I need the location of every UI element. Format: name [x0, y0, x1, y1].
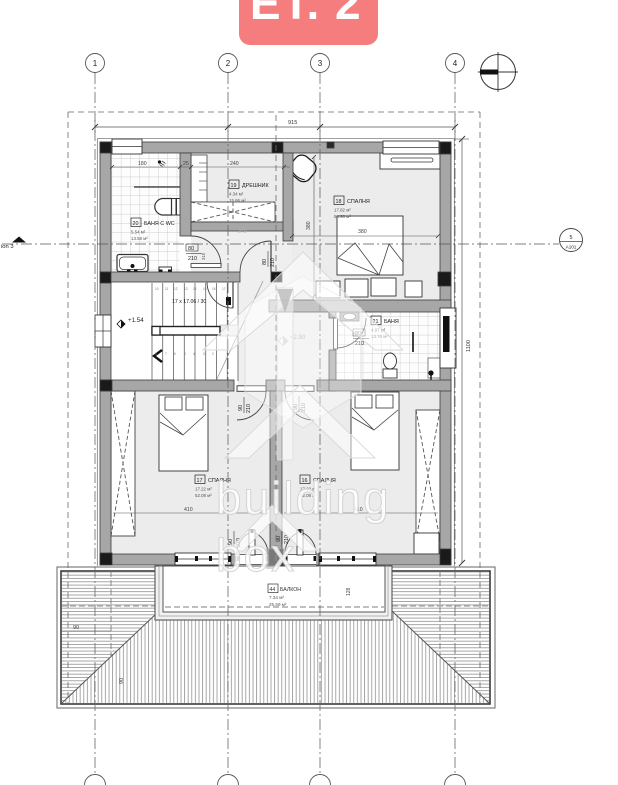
- svg-text:380: 380: [358, 229, 367, 235]
- svg-text:ЕТ. 2: ЕТ. 2: [250, 0, 362, 29]
- svg-text:380: 380: [306, 221, 312, 230]
- svg-text:128: 128: [346, 587, 352, 596]
- svg-text:90: 90: [119, 678, 125, 684]
- svg-text:1100: 1100: [466, 340, 472, 352]
- svg-text:17: 17: [197, 478, 203, 484]
- svg-text:44: 44: [270, 587, 276, 593]
- svg-text:80: 80: [262, 259, 268, 265]
- svg-text:240: 240: [230, 161, 239, 167]
- svg-text:8: 8: [155, 352, 157, 356]
- svg-text:4.34 м²: 4.34 м²: [229, 192, 244, 197]
- svg-text:4: 4: [453, 59, 458, 68]
- svg-text:210: 210: [188, 256, 197, 262]
- svg-text:+1.54: +1.54: [128, 317, 144, 324]
- svg-text:ion 3: ion 3: [1, 244, 14, 250]
- svg-text:25.59 м²: 25.59 м²: [269, 602, 287, 607]
- svg-text:16: 16: [212, 287, 216, 291]
- svg-text:5: 5: [184, 352, 186, 356]
- svg-text:4: 4: [193, 352, 195, 356]
- svg-text:7: 7: [165, 352, 167, 356]
- svg-text:11: 11: [165, 287, 169, 291]
- svg-text:СПАЛНЯ: СПАЛНЯ: [347, 199, 370, 205]
- svg-text:410: 410: [184, 507, 193, 513]
- svg-text:box: box: [216, 529, 296, 581]
- svg-text:315: 315: [201, 252, 206, 260]
- svg-text:15: 15: [203, 287, 207, 291]
- svg-text:15.66 м²: 15.66 м²: [229, 198, 246, 203]
- svg-text:20: 20: [133, 221, 139, 227]
- svg-text:БАНЯ: БАНЯ: [384, 319, 399, 325]
- svg-text:90: 90: [238, 405, 244, 411]
- svg-text:180: 180: [138, 161, 147, 167]
- svg-text:90: 90: [73, 625, 79, 631]
- svg-text:6: 6: [174, 352, 176, 356]
- svg-text:915: 915: [288, 120, 297, 126]
- svg-text:БАНЯ С WC: БАНЯ С WC: [144, 221, 175, 227]
- svg-text:12: 12: [174, 287, 178, 291]
- svg-text:240: 240: [238, 229, 247, 235]
- svg-text:17.82 м²: 17.82 м²: [334, 208, 351, 213]
- svg-text:13: 13: [184, 287, 188, 291]
- svg-text:19: 19: [231, 183, 237, 189]
- svg-text:54.98 м²: 54.98 м²: [334, 214, 351, 219]
- svg-text:210: 210: [270, 258, 276, 267]
- svg-text:ДРЕШНИК: ДРЕШНИК: [242, 183, 270, 189]
- svg-text:1: 1: [93, 59, 98, 68]
- svg-text:17: 17: [222, 287, 226, 291]
- svg-text:80: 80: [188, 246, 194, 252]
- svg-text:2: 2: [212, 352, 214, 356]
- svg-text:A101: A101: [566, 245, 577, 250]
- svg-text:210: 210: [246, 404, 252, 413]
- svg-text:10: 10: [155, 287, 159, 291]
- svg-text:7.34 м²: 7.34 м²: [269, 595, 284, 600]
- svg-text:17.22 м²: 17.22 м²: [195, 487, 212, 492]
- svg-text:5.54 м²: 5.54 м²: [131, 230, 146, 235]
- svg-text:13.58 м²: 13.58 м²: [131, 236, 148, 241]
- svg-text:building: building: [216, 472, 391, 524]
- svg-text:17 x 17.06 / 30: 17 x 17.06 / 30: [172, 299, 206, 305]
- svg-text:БАЛКОН: БАЛКОН: [280, 587, 301, 593]
- svg-text:5: 5: [570, 235, 573, 241]
- svg-text:25: 25: [183, 161, 189, 167]
- svg-text:3: 3: [318, 59, 323, 68]
- svg-text:52.08 м²: 52.08 м²: [195, 493, 212, 498]
- svg-text:3: 3: [203, 352, 205, 356]
- svg-text:14: 14: [193, 287, 197, 291]
- svg-text:2: 2: [226, 59, 231, 68]
- svg-text:18: 18: [336, 199, 342, 205]
